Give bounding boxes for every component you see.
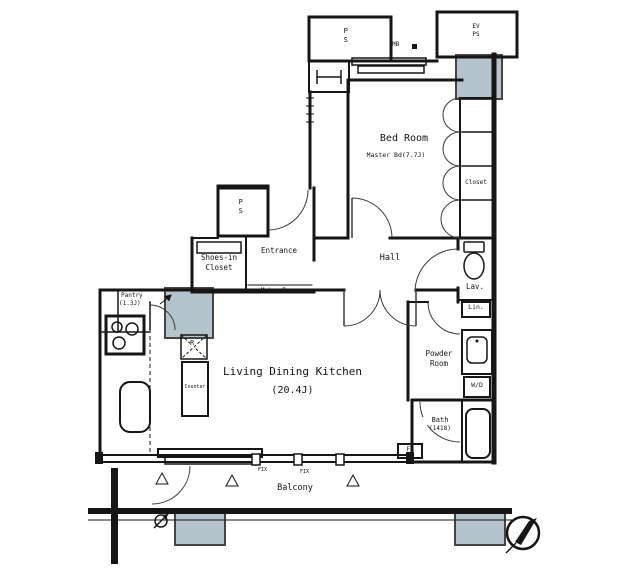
stove <box>106 316 144 354</box>
burner-icon <box>126 323 138 335</box>
powder-door-arc <box>428 302 460 334</box>
lav-door-arc <box>415 249 458 292</box>
mb-label: MB <box>392 42 399 49</box>
toilet-bowl <box>464 253 484 279</box>
fix-label-left: FIX <box>258 468 267 474</box>
toilet-tank <box>464 242 484 252</box>
washer-dryer-label: W/D <box>464 382 490 389</box>
floor-plan: PS MB EV PS Bed Room Master Bd(7.7J) Clo… <box>0 0 640 569</box>
balcony-label: Balcony <box>260 484 330 493</box>
pantry-size-label: (1.3J) <box>119 301 141 308</box>
powder-room-label-line1: Powder <box>414 350 464 358</box>
shaft-box-balcony-left <box>175 512 225 545</box>
ldk-size-label: (20.4J) <box>200 385 385 396</box>
burner-icon <box>113 337 125 349</box>
entrance-door-arc <box>268 190 308 230</box>
fs-label: FS <box>398 447 422 454</box>
balcony-rail <box>88 508 512 514</box>
ev-label-line1: EV <box>464 24 488 31</box>
closet-door-arc <box>443 98 460 132</box>
bedroom-label: Bed Room <box>358 133 450 144</box>
compass-icon <box>506 517 539 553</box>
ps-top-label: PS <box>341 27 349 45</box>
lav-label: Lav. <box>458 283 492 291</box>
bath-size-label: (1418) <box>418 426 462 433</box>
shoes-closet-label-line1: Shoes-in <box>194 254 244 262</box>
fix-label-right: FIX <box>300 470 309 476</box>
powder-room-label-line2: Room <box>414 360 464 368</box>
ps-entrance-label: PS <box>236 198 244 216</box>
ldk-label: Living Dining Kitchen <box>200 366 385 378</box>
pantry-label: Pantry <box>121 293 143 300</box>
sanitary-fixtures <box>462 242 492 458</box>
beam-symbol <box>317 70 341 84</box>
bedroom-door-arc <box>352 198 392 238</box>
bath-label: Bath <box>420 417 460 425</box>
ev-label-line2: PS <box>464 32 488 39</box>
closet-label: Closet <box>459 180 493 187</box>
balcony-door-arc <box>152 466 190 504</box>
bedroom-size-label: Master Bd(7.7J) <box>348 152 444 159</box>
drain-icon <box>154 514 168 528</box>
entrance-label: Entrance <box>248 247 310 255</box>
ldk-door-right-arc <box>380 290 416 326</box>
linen-label: Lin. <box>462 304 490 311</box>
meter-square <box>412 44 417 49</box>
kitchen-sink <box>120 382 150 432</box>
shoes-closet-label-line2: Closet <box>194 264 244 272</box>
bathtub <box>466 409 490 458</box>
building-edge <box>111 468 118 564</box>
faucet-dot <box>476 340 479 343</box>
burner-icon <box>112 322 122 332</box>
hall-label: Hall <box>368 254 412 263</box>
shaft-box-kitchen <box>165 288 213 338</box>
entrance-note-label: Meter Box <box>248 288 306 295</box>
refrigerator-label: R <box>190 340 194 348</box>
shaded-shaft-boxes <box>165 55 505 545</box>
walls <box>100 12 517 465</box>
ldk-door-left-arc <box>344 290 380 326</box>
shaft-box-balcony-right <box>455 512 505 545</box>
